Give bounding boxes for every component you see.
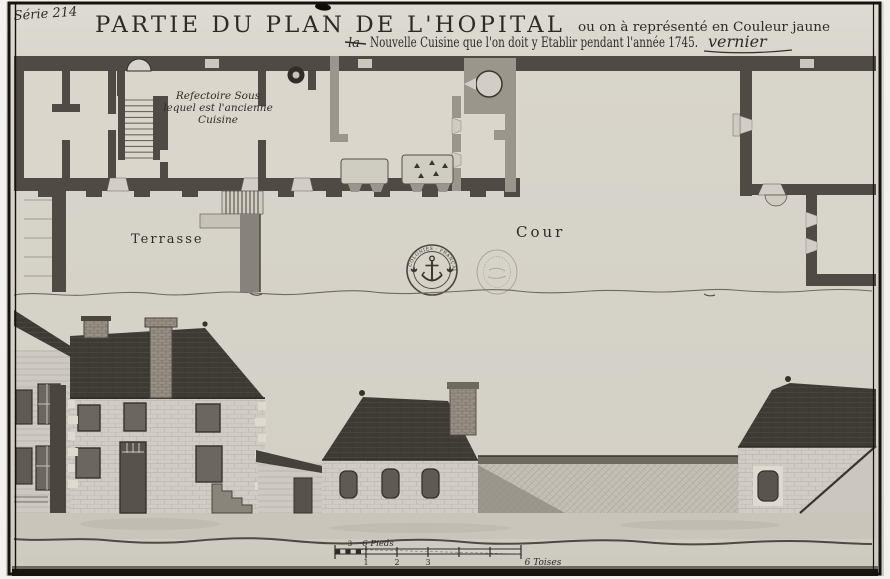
tick-label-3: 3: [425, 558, 430, 567]
right-building-window: [758, 471, 778, 501]
plan-drawing: Série 214 PARTIE DU PLAN DE L'HOPITAL ou…: [0, 0, 890, 579]
kitchen-table: [341, 159, 388, 184]
pieds-mid-label: 3: [348, 540, 352, 548]
southeast-room-floor: [817, 195, 876, 274]
tick-label-1: 1: [363, 558, 368, 567]
title-tail: ou on à représenté en Couleur jaune: [578, 20, 830, 35]
east-room-floor: [752, 68, 876, 184]
scanned-plan-document: Série 214 PARTIE DU PLAN DE L'HOPITAL ou…: [0, 0, 890, 579]
chimney: [84, 320, 108, 338]
door-threshold: [758, 184, 786, 195]
window-gap: [800, 59, 814, 68]
chimney: [150, 326, 172, 398]
oven-ring-center: [293, 72, 300, 79]
courtyard-pier: [240, 214, 260, 292]
title-line2: Nouvelle Cuisine que l'on doit y Etablir…: [370, 35, 698, 51]
courtyard-label: Cour: [516, 223, 565, 241]
refectory-line2: lequel est l'ancienne: [163, 102, 273, 114]
ridge-finial: [202, 321, 207, 326]
window-gap: [205, 59, 219, 68]
terrace-wall: [52, 182, 66, 292]
kitchen-oven: [476, 71, 502, 97]
refectory-line1: Refectoire Sous: [175, 90, 261, 102]
pieds-label: 6 Pieds: [362, 539, 394, 549]
ridge-finial: [785, 376, 791, 382]
window-gap: [358, 59, 372, 68]
refectory-line3: Cuisine: [198, 114, 238, 126]
ridge-finial: [359, 390, 365, 396]
annex-door: [294, 478, 312, 513]
corner-pillar: [50, 385, 66, 513]
middle-building-windows: [340, 469, 439, 498]
terrace-label: Terrasse: [131, 232, 204, 247]
signature: vernier: [708, 32, 768, 51]
tick-label-2: 2: [394, 558, 399, 567]
kitchen-stove: [402, 155, 453, 184]
chimney: [450, 387, 476, 435]
courtyard-wall: [478, 456, 755, 513]
